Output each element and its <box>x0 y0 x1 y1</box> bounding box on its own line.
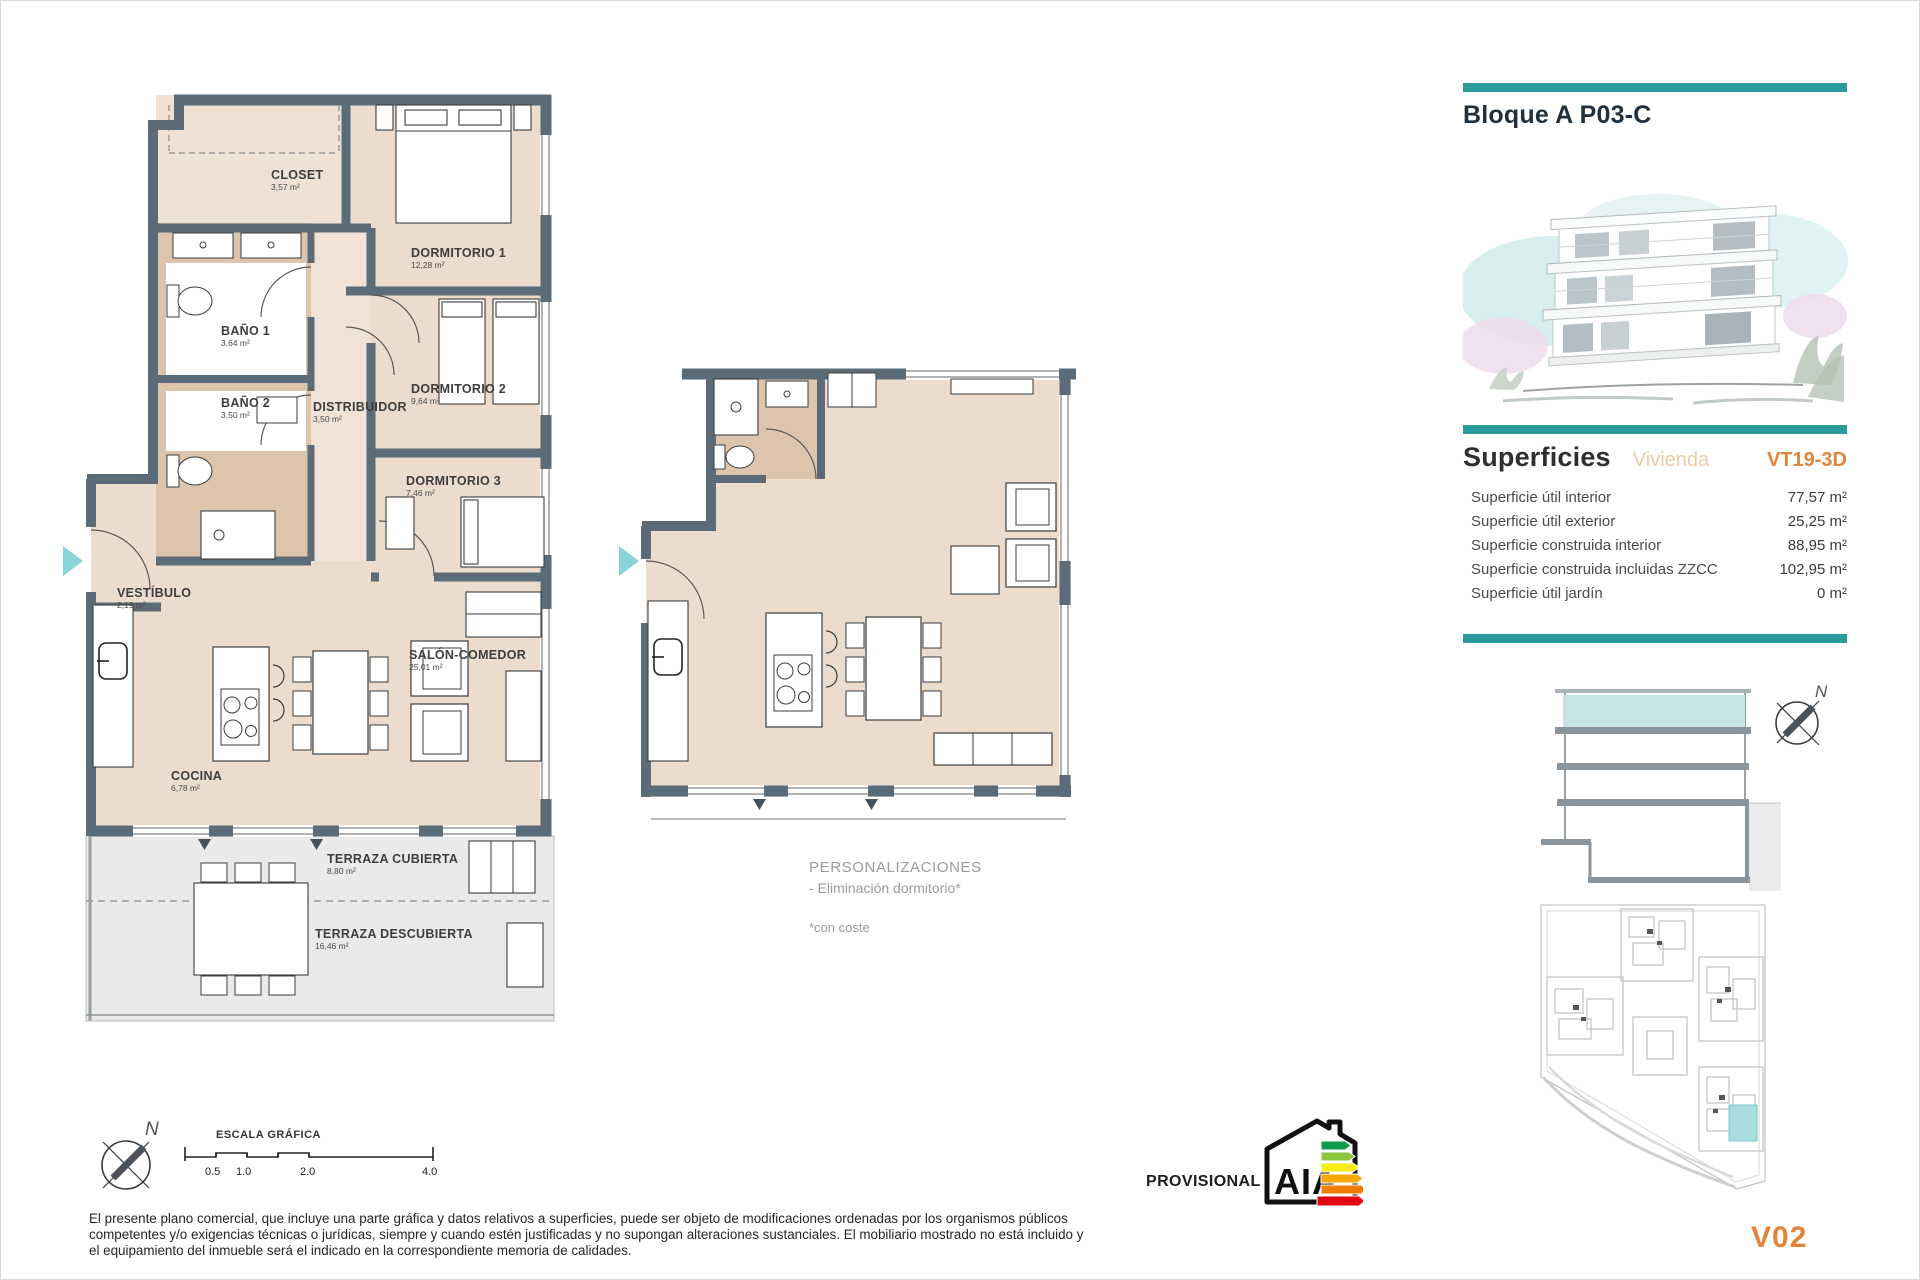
scale-tick: 4.0 <box>422 1166 437 1178</box>
accent-bar-bottom <box>1463 634 1847 643</box>
room-label-bano1: BAÑO 13,64 m² <box>221 325 270 348</box>
bano1-floor <box>166 263 306 376</box>
distribuidor-floor <box>311 223 371 561</box>
entry-arrow-icon <box>619 546 639 576</box>
terrace-planter <box>507 923 543 987</box>
building-illustration <box>1463 151 1848 423</box>
room-label-dormitorio2: DORMITORIO 29,64 m² <box>411 383 506 406</box>
unit-code: VT19-3D <box>1767 449 1847 472</box>
room-label-salon: SALÓN-COMEDOR25,01 m² <box>409 649 526 672</box>
provisional-label: PROVISIONAL <box>1146 1173 1261 1191</box>
accent-bar-middle <box>1463 425 1847 434</box>
entry-arrow-icon <box>63 546 83 576</box>
highlighted-unit <box>1729 1105 1757 1141</box>
personalizaciones-footnote: *con coste <box>809 920 982 935</box>
disclaimer-text: El presente plano comercial, que incluye… <box>89 1211 1091 1259</box>
personalizaciones-option: - Eliminación dormitorio* <box>809 880 982 896</box>
table-row: Superficie útil interior77,57 m² <box>1471 485 1847 509</box>
scale-bar: 0.5 1.0 2.0 4.0 <box>181 1139 451 1185</box>
table-row: Superficie construida interior88,95 m² <box>1471 533 1847 557</box>
furniture-dorm1 <box>376 105 531 223</box>
room-label-terraza-cubierta: TERRAZA CUBIERTA8,80 m² <box>327 853 458 876</box>
room-label-vestibulo: VESTÍBULO2,19 m² <box>117 587 191 610</box>
room-label-closet: CLOSET3,57 m² <box>271 169 324 192</box>
floor-plan-main-drawing <box>61 87 566 1037</box>
superficies-title: Superficies <box>1463 442 1611 473</box>
scale-tick: 2.0 <box>300 1166 315 1178</box>
version-label: V02 <box>1751 1221 1807 1255</box>
room-label-bano2: BAÑO 23,50 m² <box>221 397 270 420</box>
closet-floor <box>156 95 346 223</box>
slider-marker-icon <box>753 799 766 810</box>
compass-icon: N <box>1763 681 1835 753</box>
room-label-terraza-descubierta: TERRAZA DESCUBIERTA16,46 m² <box>315 928 473 951</box>
floor-plan-main: CLOSET3,57 m² DORMITORIO 112,28 m² BAÑO … <box>61 87 566 1037</box>
room-label-distribuidor: DISTRIBUIDOR3,50 m² <box>313 401 407 424</box>
room-label-cocina: COCINA6,78 m² <box>171 770 222 793</box>
superficies-header: Superficies Vivienda VT19-3D <box>1463 442 1847 473</box>
floor-plan-variant-drawing <box>616 361 1086 841</box>
floor-plan-variant <box>616 361 1086 841</box>
scale-tick: 1.0 <box>236 1166 251 1178</box>
highlighted-floor <box>1563 695 1745 727</box>
terrace-table <box>194 883 308 975</box>
table-row: Superficie construida incluidas ZZCC102,… <box>1471 557 1847 581</box>
plan-sheet: CLOSET3,57 m² DORMITORIO 112,28 m² BAÑO … <box>0 0 1920 1280</box>
superficies-subtitle: Vivienda <box>1633 449 1709 472</box>
compass-icon: N <box>89 1117 169 1199</box>
room-label-dormitorio1: DORMITORIO 112,28 m² <box>411 247 506 270</box>
north-label: N <box>1815 682 1828 701</box>
table-row: Superficie útil jardín0 m² <box>1471 581 1847 605</box>
accent-bar-top <box>1463 83 1847 92</box>
room-label-dormitorio3: DORMITORIO 37,46 m² <box>406 475 501 498</box>
energy-label-icon: AIA <box>1261 1115 1363 1209</box>
terrace-bench <box>469 841 535 893</box>
site-plan <box>1529 899 1784 1199</box>
scale-tick: 0.5 <box>205 1166 220 1178</box>
personalizaciones-note: PERSONALIZACIONES - Eliminación dormitor… <box>809 859 982 935</box>
north-label: N <box>145 1119 159 1140</box>
personalizaciones-title: PERSONALIZACIONES <box>809 859 982 876</box>
superficies-table: Superficie útil interior77,57 m² Superfi… <box>1471 485 1847 605</box>
page-title: Bloque A P03-C <box>1463 101 1651 130</box>
slider-marker-icon <box>865 799 878 810</box>
section-diagram <box>1541 679 1781 894</box>
table-row: Superficie útil exterior25,25 m² <box>1471 509 1847 533</box>
